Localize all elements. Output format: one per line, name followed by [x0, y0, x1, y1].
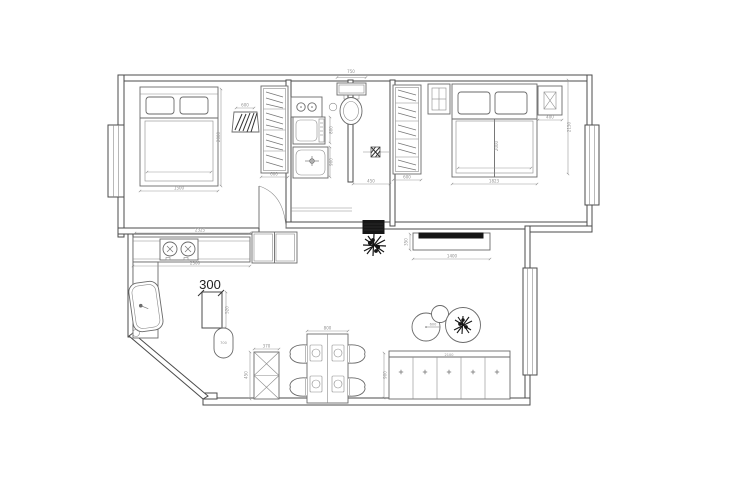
dim-label: 450 — [244, 371, 249, 379]
floor-drain — [329, 103, 337, 111]
sideboard — [389, 351, 510, 399]
dim-label: 750 — [347, 69, 355, 74]
dim-label: 1823 — [489, 179, 500, 184]
washing-machine — [293, 117, 325, 144]
stool — [232, 112, 259, 132]
floor-plan-canvas: 700 300 — [0, 0, 740, 500]
tall-cabinet — [254, 352, 279, 399]
dim-label: 2150 — [567, 121, 572, 132]
wall-column-stub — [202, 292, 222, 328]
pillow — [146, 97, 174, 114]
dim-label: 900 — [329, 158, 334, 166]
column-capsule: 700 — [214, 328, 233, 358]
wall-kitchen-left — [128, 231, 133, 337]
cooktop — [160, 239, 198, 260]
dining-area — [254, 334, 365, 403]
wardrobe-bedroom1 — [261, 86, 288, 173]
pillow — [458, 92, 490, 114]
door-bedroom1 — [259, 186, 286, 228]
nightstand-left — [428, 84, 450, 114]
nightstand-right — [538, 86, 562, 115]
bed-double-left — [140, 87, 218, 186]
dim-label: 520 — [225, 306, 230, 314]
dim-label: 2300 — [190, 261, 201, 266]
dim-label: 2325 — [195, 228, 206, 233]
wall-diagonal — [129, 333, 208, 399]
bedroom-left — [140, 86, 288, 228]
hallway — [363, 147, 389, 256]
dim-label: 370 — [263, 344, 271, 349]
floor-plan-drawing: 700 300 — [0, 0, 740, 500]
dim-label: 2000 — [216, 131, 221, 142]
wall-bathroom-south — [286, 222, 364, 228]
dim-label: 450 — [367, 179, 375, 184]
door-lock-symbol — [363, 147, 389, 157]
pillow — [495, 92, 527, 114]
dim-label: 800 — [329, 126, 334, 134]
dim-label: 2000 — [494, 140, 499, 151]
dining-table — [307, 334, 348, 403]
toilet — [337, 83, 366, 125]
dim-label: 600 — [430, 323, 437, 327]
dim-label: 1500 — [174, 186, 185, 191]
dim-label: 1400 — [447, 254, 458, 259]
tv-cabinet — [413, 233, 490, 250]
wall-bedroom2-southeast — [530, 226, 592, 232]
entry-plant — [363, 234, 386, 256]
bedroom-right — [393, 84, 562, 177]
kitchen-sink — [128, 280, 165, 333]
wardrobe-bedroom2 — [393, 85, 421, 174]
shower-tray — [293, 147, 328, 178]
window-living-east — [523, 268, 537, 375]
dim-label: 350 — [404, 238, 409, 246]
dim-label: 600 — [241, 103, 249, 108]
refrigerator — [252, 232, 297, 263]
coffee-tables — [412, 306, 481, 343]
window-bedroom2-east — [585, 125, 599, 205]
dim-label: 600 — [403, 175, 411, 180]
window-bedroom1-west — [108, 125, 124, 197]
dim-label: 400 — [546, 115, 554, 120]
dim-label: 800 — [324, 326, 332, 331]
annotation-300: 300 — [199, 277, 221, 292]
bed-double-right — [452, 84, 537, 177]
pillow — [180, 97, 208, 114]
dim-label: 900 — [383, 371, 388, 379]
capsule-label: 700 — [220, 341, 227, 345]
dim-label: 2100 — [445, 353, 454, 357]
wall-top — [118, 75, 592, 81]
vanity-basin — [291, 97, 322, 117]
dim-label: 600 — [270, 172, 278, 177]
